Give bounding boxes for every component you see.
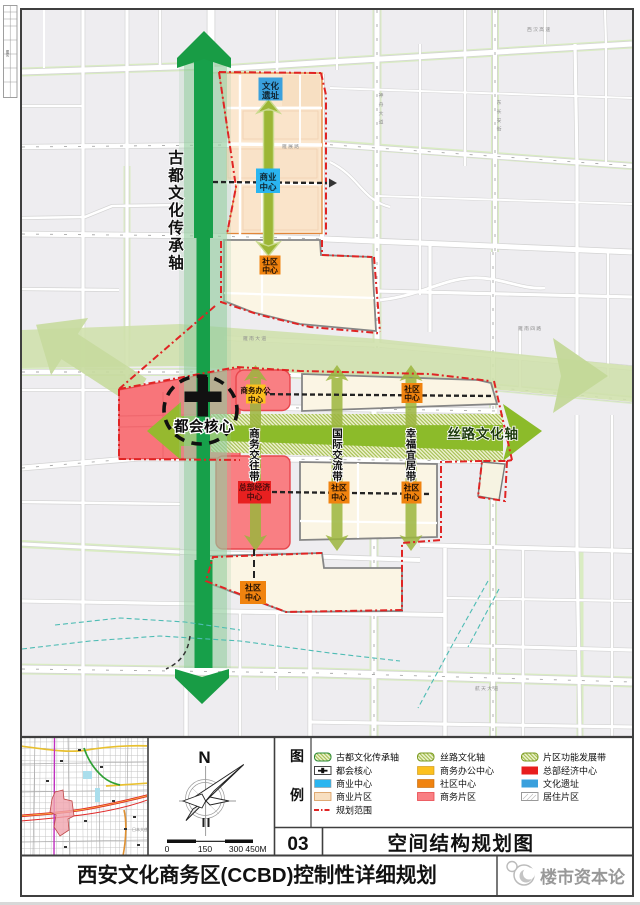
svg-text:300: 300 xyxy=(229,844,243,854)
svg-text:居住片区: 居住片区 xyxy=(543,791,579,802)
svg-text:神舟大道: 神舟大道 xyxy=(378,92,383,128)
svg-text:社区: 社区 xyxy=(403,384,420,394)
svg-text:文: 文 xyxy=(168,183,184,202)
svg-text:规划范围: 规划范围 xyxy=(336,805,372,816)
svg-text:都会核心: 都会核心 xyxy=(336,765,372,776)
svg-text:150: 150 xyxy=(198,844,212,854)
svg-text:古都文化传承轴: 古都文化传承轴 xyxy=(336,752,399,763)
svg-text:商务办公: 商务办公 xyxy=(241,385,271,395)
svg-text:中心: 中心 xyxy=(404,492,420,502)
svg-text:商业中心: 商业中心 xyxy=(336,778,372,789)
svg-text:古: 古 xyxy=(168,148,184,167)
svg-text:中心: 中心 xyxy=(248,394,263,404)
svg-text:中心: 中心 xyxy=(259,182,277,192)
svg-text:西 汉 高 速: 西 汉 高 速 xyxy=(527,26,550,33)
svg-text:商务片区: 商务片区 xyxy=(440,791,476,802)
svg-text:雁 南 四 路: 雁 南 四 路 xyxy=(518,325,541,332)
svg-text:片区功能发展带: 片区功能发展带 xyxy=(543,752,606,763)
svg-text:雁 展 路: 雁 展 路 xyxy=(282,143,299,150)
svg-text:商业: 商业 xyxy=(259,172,277,182)
svg-text:总部经济: 总部经济 xyxy=(239,482,270,492)
svg-text:社区: 社区 xyxy=(244,583,261,593)
svg-text:雁 南 大 道: 雁 南 大 道 xyxy=(243,335,266,342)
svg-text:中心: 中心 xyxy=(404,393,420,403)
svg-text:轴: 轴 xyxy=(168,253,184,272)
svg-text:文化: 文化 xyxy=(262,81,280,91)
svg-text:承: 承 xyxy=(168,237,184,255)
svg-text:N: N xyxy=(198,748,210,767)
svg-text:03: 03 xyxy=(287,834,308,855)
svg-text:文化遗址: 文化遗址 xyxy=(543,778,579,789)
svg-text:楼市资本论: 楼市资本论 xyxy=(540,867,626,887)
svg-text:中心: 中心 xyxy=(245,592,261,602)
svg-text:带: 带 xyxy=(332,470,343,483)
svg-text:图: 图 xyxy=(290,748,304,764)
svg-text:社区: 社区 xyxy=(330,483,347,493)
svg-text:丝路文化轴: 丝路文化轴 xyxy=(440,752,485,763)
svg-text:商务办公中心: 商务办公中心 xyxy=(440,765,494,776)
svg-text:450M: 450M xyxy=(245,844,266,854)
svg-text:化: 化 xyxy=(168,201,184,220)
svg-text:图名: 图名 xyxy=(5,50,10,58)
svg-text:中心: 中心 xyxy=(331,492,347,502)
svg-text:商业片区: 商业片区 xyxy=(336,791,372,802)
svg-text:都: 都 xyxy=(167,166,184,185)
svg-text:都会核心: 都会核心 xyxy=(173,418,234,436)
svg-text:西安文化商务区(CCBD)控制性详细规划: 西安文化商务区(CCBD)控制性详细规划 xyxy=(77,863,437,887)
svg-text:遗址: 遗址 xyxy=(261,91,280,101)
svg-text:社区中心: 社区中心 xyxy=(440,778,476,789)
svg-text:丝路文化轴: 丝路文化轴 xyxy=(447,426,519,442)
svg-text:带: 带 xyxy=(249,470,260,483)
svg-text:东长安街: 东长安街 xyxy=(496,99,501,135)
svg-text:总部经济中心: 总部经济中心 xyxy=(543,765,597,776)
svg-text:社区: 社区 xyxy=(403,483,420,493)
svg-text:中心: 中心 xyxy=(247,492,263,502)
svg-text:中心: 中心 xyxy=(262,265,278,275)
svg-text:例: 例 xyxy=(290,787,304,803)
svg-text:带: 带 xyxy=(406,470,417,483)
svg-text:0: 0 xyxy=(165,844,170,854)
svg-text:传: 传 xyxy=(167,218,184,237)
svg-text:空间结构规划图: 空间结构规划图 xyxy=(387,832,534,855)
svg-text:航 天 大 道: 航 天 大 道 xyxy=(475,685,498,692)
